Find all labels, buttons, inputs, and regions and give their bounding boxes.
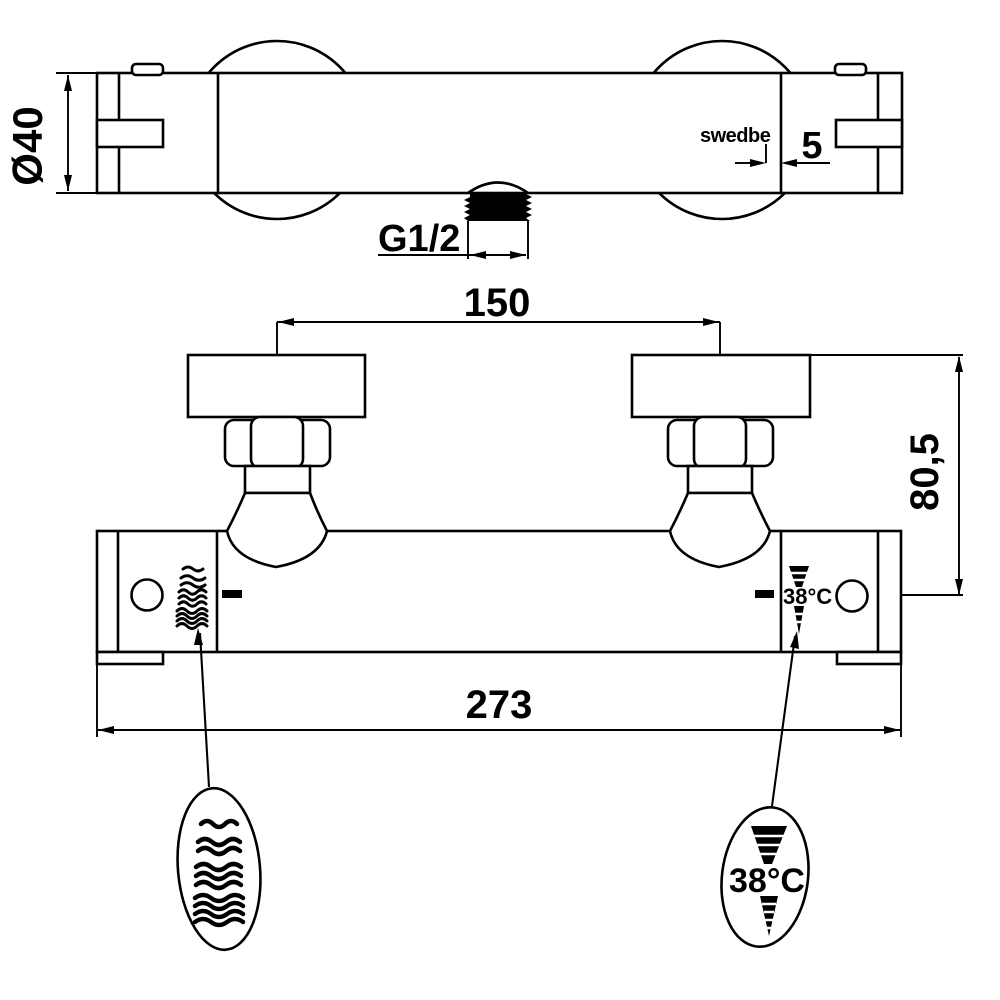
- dim-body-diameter-label: Ø40: [4, 106, 51, 185]
- top-view: G1/2 Ø40 swedbe 5: [4, 41, 902, 260]
- shower-mixer-drawing: G1/2 Ø40 swedbe 5: [0, 0, 1000, 1000]
- neck-right: [688, 466, 752, 493]
- dim-connection-spacing-label: 150: [464, 281, 531, 325]
- dim-body-diameter: Ø40: [4, 73, 97, 193]
- foot-right: [837, 652, 901, 664]
- nut-center-facet: [694, 417, 746, 468]
- dim-thread-size: G1/2: [378, 218, 526, 260]
- minus-mark-left: [222, 590, 242, 598]
- neck-left: [245, 466, 310, 493]
- right-clamp-tab: [836, 120, 902, 147]
- arrowhead: [64, 75, 72, 91]
- leader-line: [772, 636, 795, 806]
- arrowhead: [64, 175, 72, 191]
- union-nut-right: [668, 417, 773, 468]
- body-temp-label: 38°C: [783, 584, 832, 609]
- arrowhead: [278, 318, 294, 326]
- dim-total-width-label: 273: [466, 683, 533, 727]
- dim-thread-size-label: G1/2: [378, 218, 460, 260]
- knob-circle-left: [132, 580, 163, 611]
- dim-logo-offset-label: 5: [801, 125, 822, 167]
- foot-left: [97, 652, 163, 664]
- arrowhead: [470, 251, 486, 259]
- leader-line: [200, 633, 209, 787]
- arrowhead: [955, 579, 963, 595]
- wall-flange-left: [188, 355, 365, 417]
- detail-callout-left: [171, 628, 267, 953]
- front-view: 150: [97, 281, 963, 737]
- dim-total-width: 273: [97, 664, 901, 737]
- arrowhead: [510, 251, 526, 259]
- left-clamp-tab: [97, 120, 163, 147]
- detail-temp-label: 38°C: [729, 862, 805, 900]
- technical-drawing-page: G1/2 Ø40 swedbe 5: [0, 0, 1000, 1000]
- left-top-lug: [132, 64, 163, 75]
- arrowhead: [98, 726, 114, 734]
- nut-center-facet: [251, 417, 303, 468]
- right-top-lug: [835, 64, 866, 75]
- dim-wall-depth-label: 80,5: [903, 433, 947, 511]
- thread-block: [464, 194, 532, 221]
- arrowhead: [703, 318, 719, 326]
- detail-callout-right: 38°C: [714, 631, 816, 952]
- arrowhead: [955, 356, 963, 372]
- brand-logo-text: swedbe: [700, 125, 771, 147]
- knob-circle-right: [837, 581, 868, 612]
- minus-mark-right: [755, 590, 774, 598]
- arrowhead: [884, 726, 900, 734]
- union-nut-left: [225, 417, 330, 468]
- dim-connection-spacing: 150: [277, 281, 720, 355]
- wall-flange-right: [632, 355, 810, 417]
